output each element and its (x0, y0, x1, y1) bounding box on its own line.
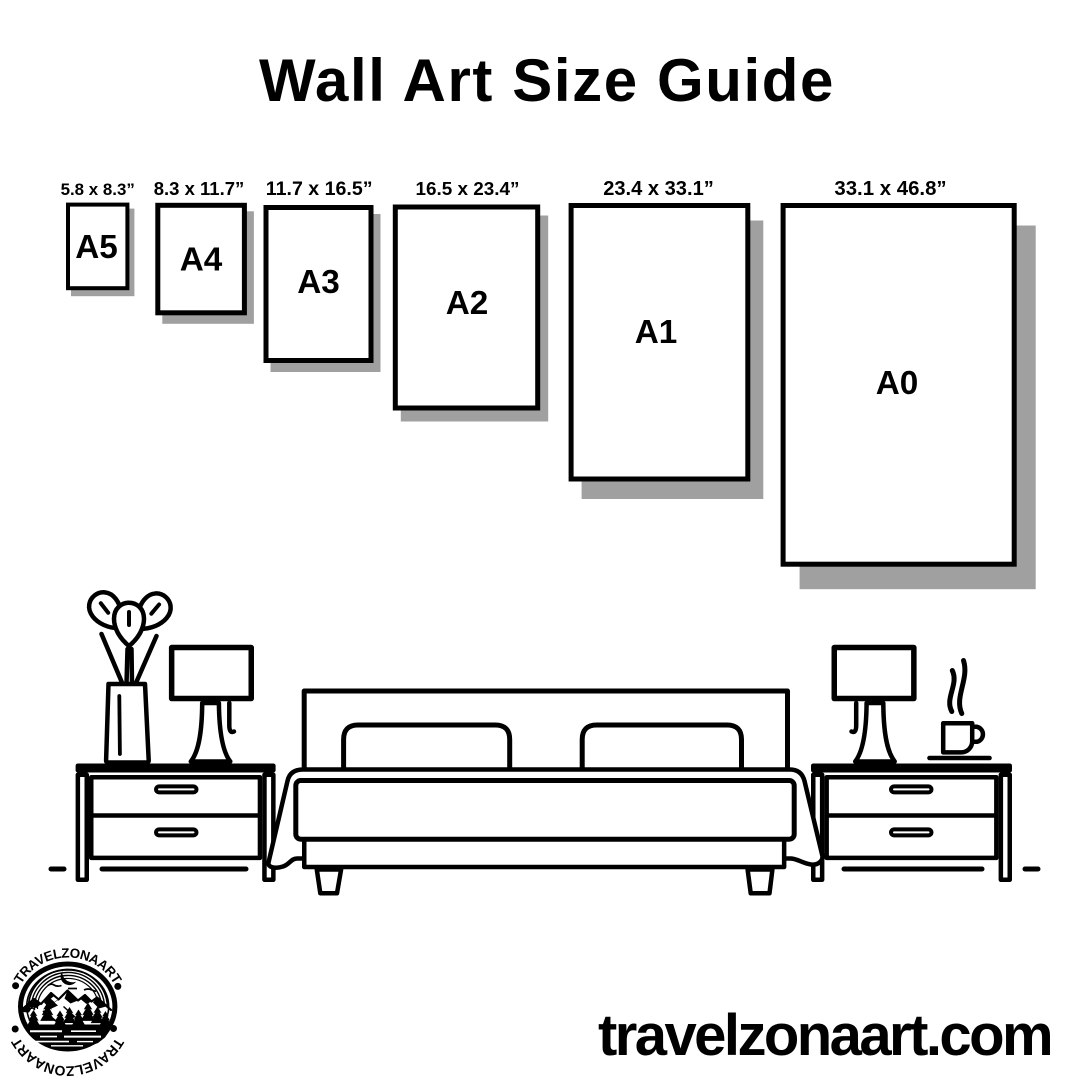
svg-text:A4: A4 (180, 241, 223, 278)
svg-text:A2: A2 (446, 285, 489, 322)
svg-text:16.5 x 23.4”: 16.5 x 23.4” (416, 179, 520, 200)
svg-text:A5: A5 (75, 229, 118, 266)
svg-text:8.3 x 11.7”: 8.3 x 11.7” (154, 178, 245, 199)
svg-text:A1: A1 (635, 314, 678, 351)
svg-text:A3: A3 (297, 264, 340, 301)
svg-text:33.1 x 46.8”: 33.1 x 46.8” (834, 178, 946, 200)
svg-text:11.7 x 16.5”: 11.7 x 16.5” (266, 178, 373, 200)
svg-text:5.8 x 8.3”: 5.8 x 8.3” (61, 180, 135, 199)
svg-text:Wall Art Size Guide: Wall Art Size Guide (259, 47, 835, 114)
svg-text:A0: A0 (876, 365, 919, 402)
svg-text:travelzonaart.com: travelzonaart.com (598, 1003, 1051, 1068)
svg-text:23.4 x 33.1”: 23.4 x 33.1” (603, 178, 714, 200)
